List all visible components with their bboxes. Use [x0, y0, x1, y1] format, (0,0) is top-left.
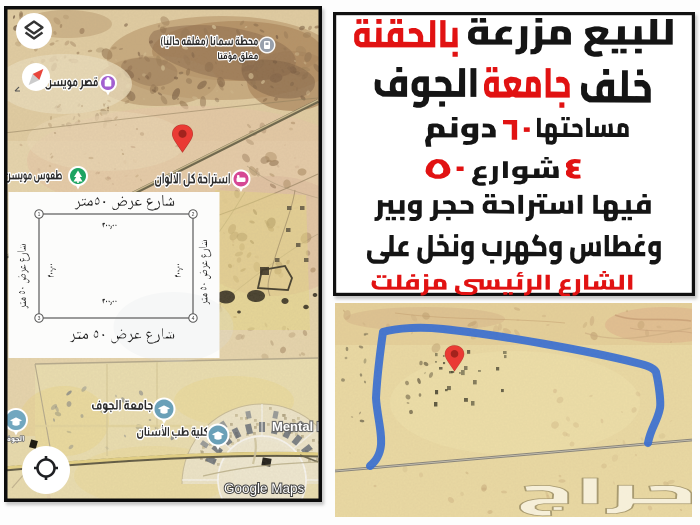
- svg-text:3: 3: [38, 316, 41, 322]
- svg-text:Mental H: Mental H: [272, 419, 322, 434]
- svg-text:4: 4: [192, 316, 195, 322]
- svg-text:2: 2: [192, 212, 195, 218]
- svg-text:Google Maps: Google Maps: [224, 481, 305, 496]
- svg-text:1: 1: [38, 212, 41, 218]
